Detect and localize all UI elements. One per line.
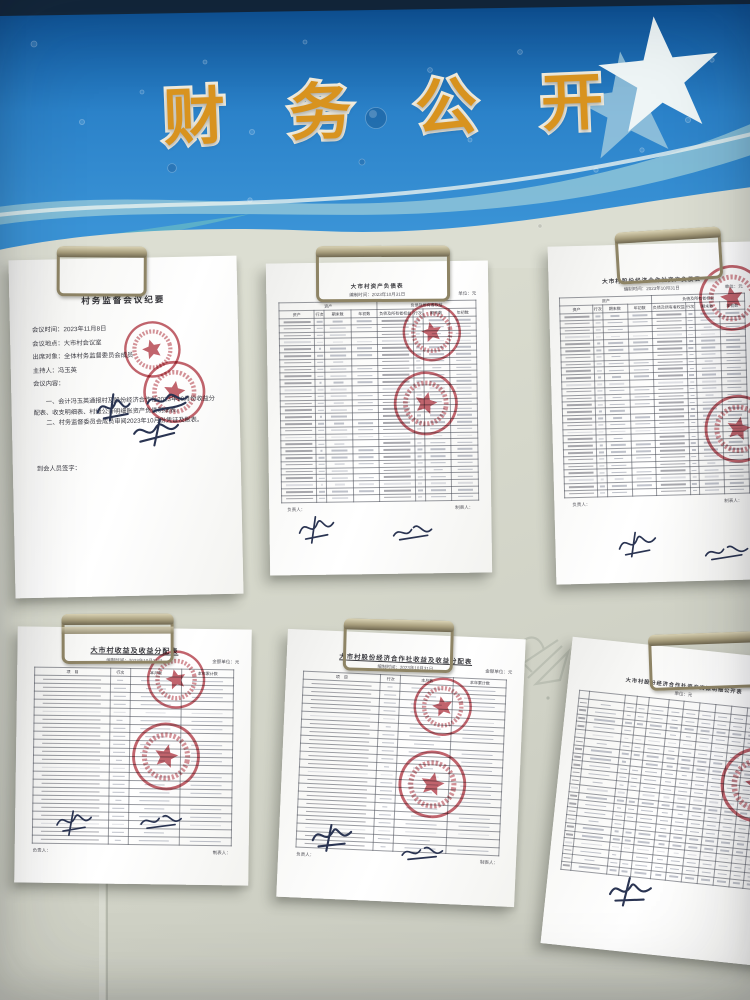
compile-date: 编制时间：2023年10月31日 bbox=[624, 285, 680, 292]
document-income-distribution-village: 大市村收益及收益分配表 编制时间：2023年10月31日 金额单位：元 项 目行… bbox=[14, 626, 252, 885]
handwritten-signature bbox=[701, 541, 750, 566]
responsible-label: 负责人： bbox=[296, 852, 314, 859]
handwritten-signature bbox=[389, 519, 435, 546]
preparer-label: 制表人： bbox=[455, 504, 473, 510]
clipboard-clip bbox=[316, 246, 450, 303]
clipboard-clip bbox=[614, 226, 723, 284]
unit-label: 单位：元 bbox=[674, 691, 693, 699]
handwritten-signature bbox=[137, 810, 183, 835]
handwritten-signature bbox=[293, 513, 339, 548]
banner-top-edge bbox=[0, 0, 750, 16]
unit-label: 金额单位：元 bbox=[485, 669, 512, 676]
handwritten-signature bbox=[601, 871, 660, 913]
document-asset-resource-register: 大市村股份经济合作社资产资源明细公开表 单位：元 bbox=[541, 637, 750, 968]
preparer-label: 制表人： bbox=[213, 850, 231, 856]
clipboard-clip bbox=[648, 631, 750, 691]
document-income-distribution-cooperative: 大市村股份经济合作社收益及收益分配表 编制时间：2023年10月31日 金额单位… bbox=[276, 629, 525, 907]
attendee-signature-label: 到会人员签字： bbox=[37, 460, 241, 473]
responsible-label: 负责人： bbox=[287, 507, 305, 513]
unit-label: 单位：元 bbox=[458, 291, 476, 297]
clipboard-clip bbox=[62, 614, 174, 664]
document-balance-sheet-cooperative: 大市村股份经济合作社资产负债表 编制时间：2023年10月31日 单位：元 资产… bbox=[548, 241, 750, 584]
handwritten-signature bbox=[613, 528, 664, 561]
responsible-label: 负责人： bbox=[33, 848, 51, 854]
handwritten-signature bbox=[51, 807, 97, 838]
clipboard-clip bbox=[57, 246, 147, 296]
preparer-label: 制表人： bbox=[724, 497, 742, 503]
handwritten-signature bbox=[398, 841, 445, 867]
document-balance-sheet-village: 大市村资产负债表 编制时间：2023年10月31日 单位：元 资产负债及所有者权… bbox=[266, 260, 492, 575]
handwritten-signature bbox=[306, 820, 357, 854]
official-seal-icon bbox=[406, 670, 479, 743]
preparer-label: 制表人： bbox=[480, 860, 498, 867]
photo-financial-disclosure-board: 财务公开 村务监督会议纪要 会议时间：2023年11月8日 会议地点：大市村会议… bbox=[0, 0, 750, 1000]
document-meeting-minutes: 村务监督会议纪要 会议时间：2023年11月8日 会议地点：大市村会议室 出席对… bbox=[8, 256, 243, 599]
clipboard-clip bbox=[343, 618, 454, 673]
responsible-label: 负责人： bbox=[572, 501, 590, 507]
official-seal-icon bbox=[717, 744, 750, 827]
unit-label: 金额单位：元 bbox=[212, 659, 239, 665]
handwritten-signatures bbox=[89, 388, 226, 453]
official-seal-icon bbox=[389, 741, 475, 827]
